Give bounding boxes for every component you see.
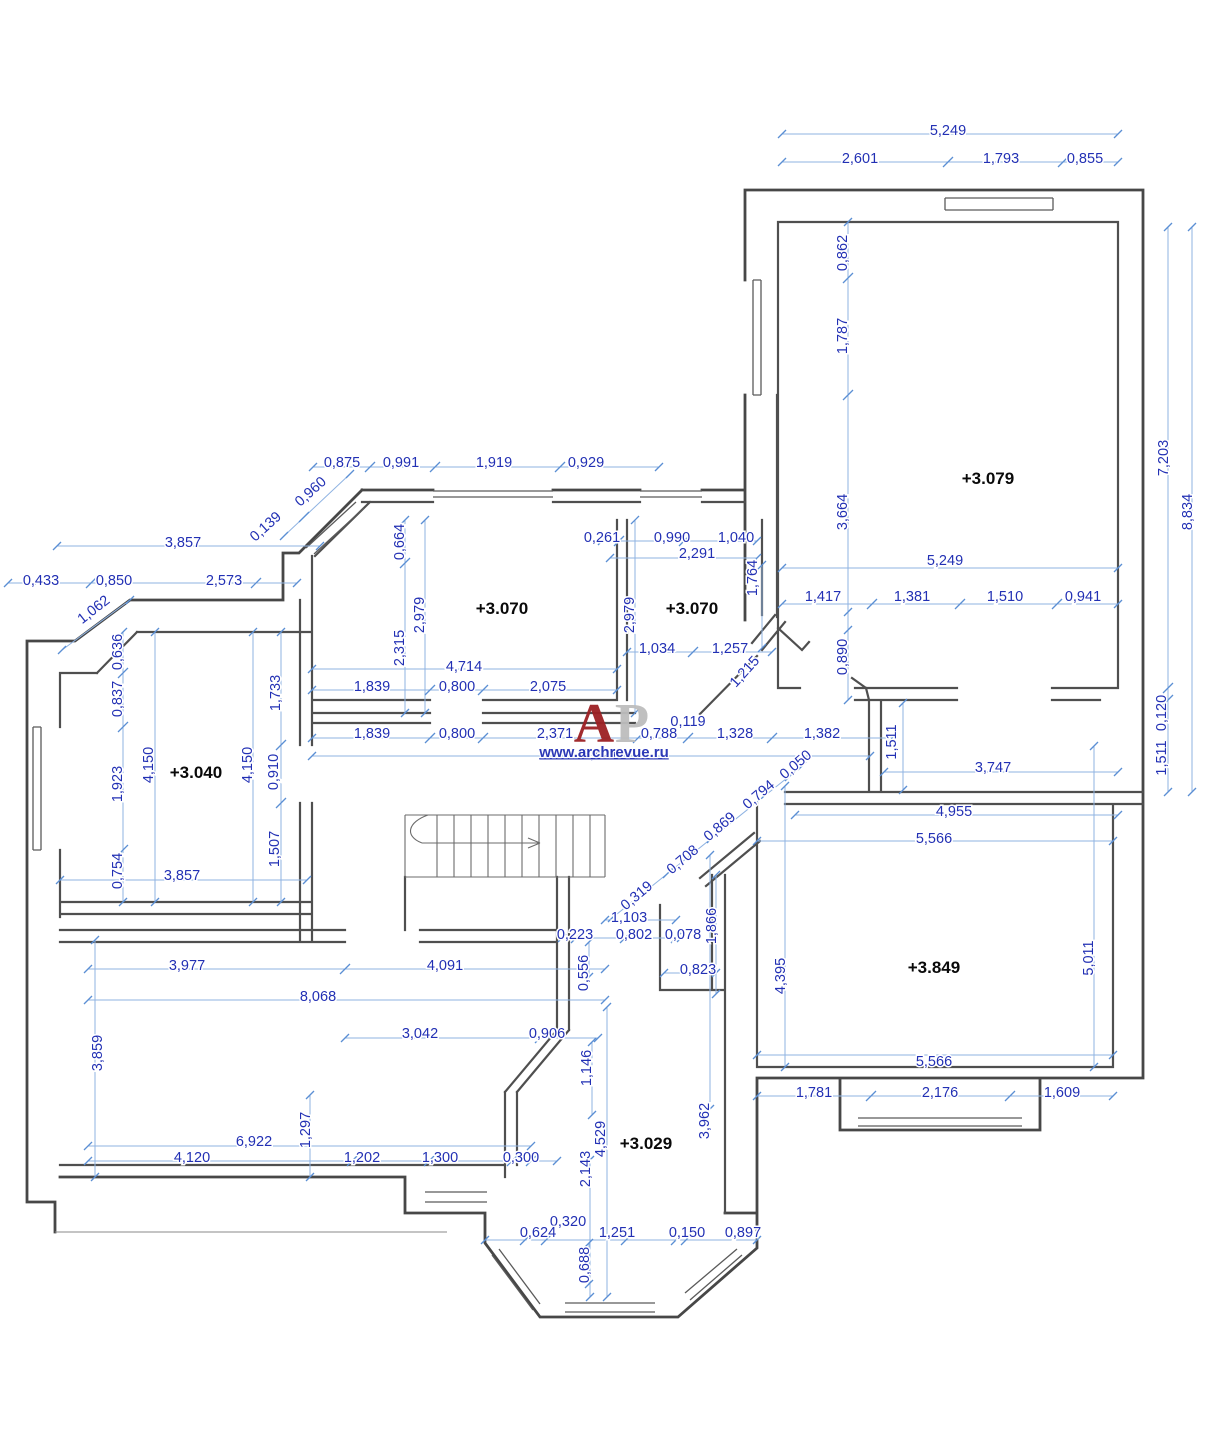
dim-label: 1,328: [717, 726, 753, 742]
dim-label: 2,601: [842, 151, 878, 167]
dim-label: 1,417: [805, 589, 841, 605]
dim-label: 8,834: [1180, 494, 1196, 530]
dim-label: 0,078: [665, 927, 701, 943]
dim-label: 5,249: [930, 123, 966, 139]
dim-label: 3,664: [835, 494, 851, 530]
dim-label: 8,068: [300, 989, 336, 1005]
dim-label: 0,800: [439, 726, 475, 742]
dim-label: 1,609: [1044, 1085, 1080, 1101]
dim-label: 1,297: [298, 1112, 314, 1148]
dim-label: 0,929: [568, 455, 604, 471]
dim-label: 4,955: [936, 804, 972, 820]
dim-label: 0,941: [1065, 589, 1101, 605]
dim-label: 0,823: [680, 962, 716, 978]
room-level-label: +3.079: [962, 469, 1014, 488]
dim-label: 4,529: [593, 1121, 609, 1157]
dim-label: 0,991: [383, 455, 419, 471]
stair-outline: [405, 815, 605, 877]
dim-label: 2,573: [206, 573, 242, 589]
dim-label: 5,011: [1081, 940, 1097, 975]
dim-label: 1,034: [639, 641, 675, 657]
dim-label: 1,381: [894, 589, 930, 605]
dim-label: 3,962: [697, 1103, 713, 1139]
dim-label: 0,800: [439, 679, 475, 695]
dim-label: 3,747: [975, 760, 1011, 776]
dim-label: 3,977: [169, 958, 205, 974]
dim-label: 1,510: [987, 589, 1023, 605]
dim-label: 4,714: [446, 659, 482, 675]
dim-label: 0,664: [392, 524, 408, 560]
dim-label: 1,787: [835, 318, 851, 354]
dim-label: 0,960: [292, 474, 330, 510]
watermark-site-url: www.archrevue.ru: [538, 744, 669, 761]
dim-label: 1,257: [712, 641, 748, 657]
room-level-label: +3.029: [620, 1134, 672, 1153]
dim-label: 0,139: [247, 509, 285, 545]
dim-label: 1,040: [718, 530, 754, 546]
dim-label: 0,802: [616, 927, 652, 943]
dim-label: 1,866: [704, 908, 720, 944]
dim-label: 0,869: [701, 809, 739, 845]
dim-label: 4,150: [141, 747, 157, 783]
dim-label: 1,146: [579, 1050, 595, 1086]
dim-label: 4,120: [174, 1150, 210, 1166]
dim-label: 0,897: [725, 1225, 761, 1241]
dim-label: 0,636: [110, 634, 126, 670]
dim-label: 5,566: [916, 831, 952, 847]
dim-label: 1,511: [884, 724, 900, 759]
room-level-label: +3.070: [476, 599, 528, 618]
dim-label: 4,150: [240, 747, 256, 783]
dim-label: 1,062: [75, 593, 113, 628]
dim-label: 0,050: [777, 747, 815, 783]
dim-label: 0,119: [670, 714, 705, 730]
dim-label: 0,862: [835, 235, 851, 271]
dim-label: 0,890: [835, 639, 851, 675]
dim-label: 0,433: [23, 573, 59, 589]
dim-label: 1,507: [267, 831, 283, 867]
room-level-label: +3.849: [908, 958, 960, 977]
dim-label: 0,910: [266, 754, 282, 790]
dim-label: 0,754: [110, 853, 126, 889]
dim-label: 2,979: [412, 597, 428, 633]
floor-plan-drawing: 5,249 2,601 1,793 0,855 0,862 1,787 3,66…: [0, 0, 1215, 1440]
dim-label: 1,382: [804, 726, 840, 742]
dim-label: 1,511: [1154, 740, 1170, 775]
dim-label: 3,857: [165, 535, 201, 551]
dim-label: 0,850: [96, 573, 132, 589]
dim-label: 2,371: [537, 726, 573, 742]
dim-label: 5,249: [927, 553, 963, 569]
dim-label: 2,075: [530, 679, 566, 695]
dim-label: 0,223: [557, 927, 593, 943]
staircase: [405, 815, 605, 877]
dim-label: 0,837: [110, 681, 126, 717]
dim-label: 1,793: [983, 151, 1019, 167]
dim-label: 0,150: [669, 1225, 705, 1241]
dim-label: 0,319: [618, 878, 656, 914]
dim-label: 0,300: [503, 1150, 539, 1166]
dim-label: 6,922: [236, 1134, 272, 1150]
dim-label: 3,042: [402, 1026, 438, 1042]
dim-label: 1,839: [354, 726, 390, 742]
dim-label: 1,300: [422, 1150, 458, 1166]
dim-label: 0,624: [520, 1225, 556, 1241]
dim-label: 0,906: [529, 1026, 565, 1042]
dim-label: 0,120: [1154, 695, 1170, 731]
dim-label: 2,176: [922, 1085, 958, 1101]
dim-label: 2,979: [622, 597, 638, 633]
room-level-label: +3.040: [170, 763, 222, 782]
dim-label: 1,202: [344, 1150, 380, 1166]
dim-label: 2,315: [392, 630, 408, 666]
dim-label: 2,291: [679, 546, 715, 562]
dim-label: 0,990: [654, 530, 690, 546]
dim-label: 1,251: [599, 1225, 635, 1241]
dim-label: 3,857: [164, 868, 200, 884]
dim-label: 7,203: [1156, 440, 1172, 476]
dim-label: 0,855: [1067, 151, 1103, 167]
dim-label: 1,923: [110, 766, 126, 802]
floor-plan-page: 5,249 2,601 1,793 0,855 0,862 1,787 3,66…: [0, 0, 1215, 1440]
dim-label: 5,566: [916, 1054, 952, 1070]
dim-label: 1,781: [796, 1085, 832, 1101]
dim-label: 1,764: [745, 560, 761, 596]
dim-label: 2,143: [578, 1151, 594, 1187]
dim-label: 1,919: [476, 455, 512, 471]
dim-label: 0,556: [576, 955, 592, 991]
dim-label: 4,091: [427, 958, 463, 974]
dim-label: 0,708: [664, 842, 702, 878]
dim-label: 0,794: [740, 777, 778, 813]
dim-label: 1,215: [727, 653, 763, 691]
dim-label: 3,859: [90, 1035, 106, 1071]
dim-label: 1,733: [268, 675, 284, 711]
dim-label: 0,875: [324, 455, 360, 471]
room-level-label: +3.070: [666, 599, 718, 618]
dim-label: 0,261: [584, 530, 620, 546]
dim-label: 4,395: [773, 958, 789, 994]
dim-label: 1,839: [354, 679, 390, 695]
dim-label: 0,688: [577, 1247, 593, 1283]
